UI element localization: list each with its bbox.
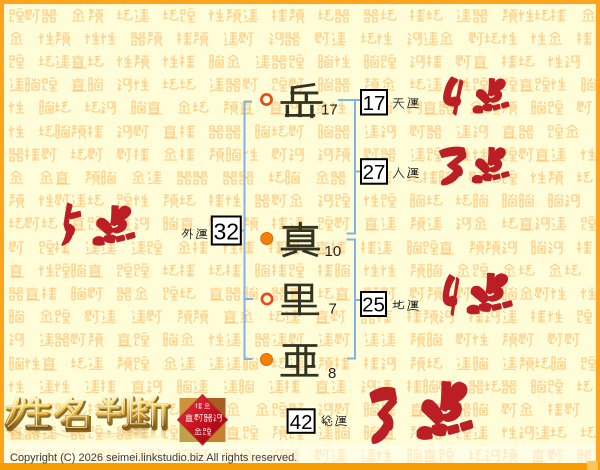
svg-text:10: 10 bbox=[325, 243, 342, 260]
svg-text:42: 42 bbox=[290, 411, 313, 434]
svg-text:Copyright (C) 2026 seimei.link: Copyright (C) 2026 seimei.linkstudio.biz… bbox=[10, 452, 297, 464]
svg-text:7: 7 bbox=[329, 301, 337, 318]
svg-text:8: 8 bbox=[328, 365, 336, 382]
svg-text:25: 25 bbox=[362, 294, 385, 317]
svg-text:32: 32 bbox=[214, 219, 240, 245]
svg-text:17: 17 bbox=[363, 92, 386, 115]
svg-text:17: 17 bbox=[321, 102, 338, 119]
svg-text:27: 27 bbox=[363, 161, 386, 184]
